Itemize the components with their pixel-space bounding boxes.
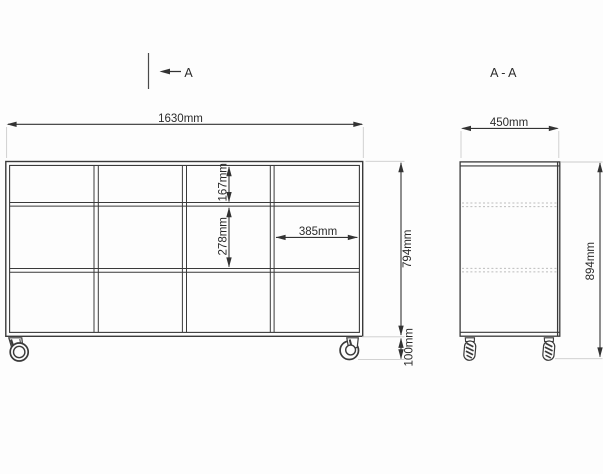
- svg-text:278mm: 278mm: [217, 217, 229, 255]
- svg-text:1630mm: 1630mm: [158, 113, 203, 125]
- svg-text:A - A: A - A: [490, 66, 517, 80]
- svg-text:A: A: [184, 66, 193, 80]
- svg-text:450mm: 450mm: [490, 117, 528, 129]
- svg-text:100mm: 100mm: [404, 328, 416, 366]
- svg-text:894mm: 894mm: [585, 242, 597, 280]
- svg-text:385mm: 385mm: [299, 226, 337, 238]
- svg-text:794mm: 794mm: [402, 230, 414, 268]
- svg-text:167mm: 167mm: [217, 163, 229, 201]
